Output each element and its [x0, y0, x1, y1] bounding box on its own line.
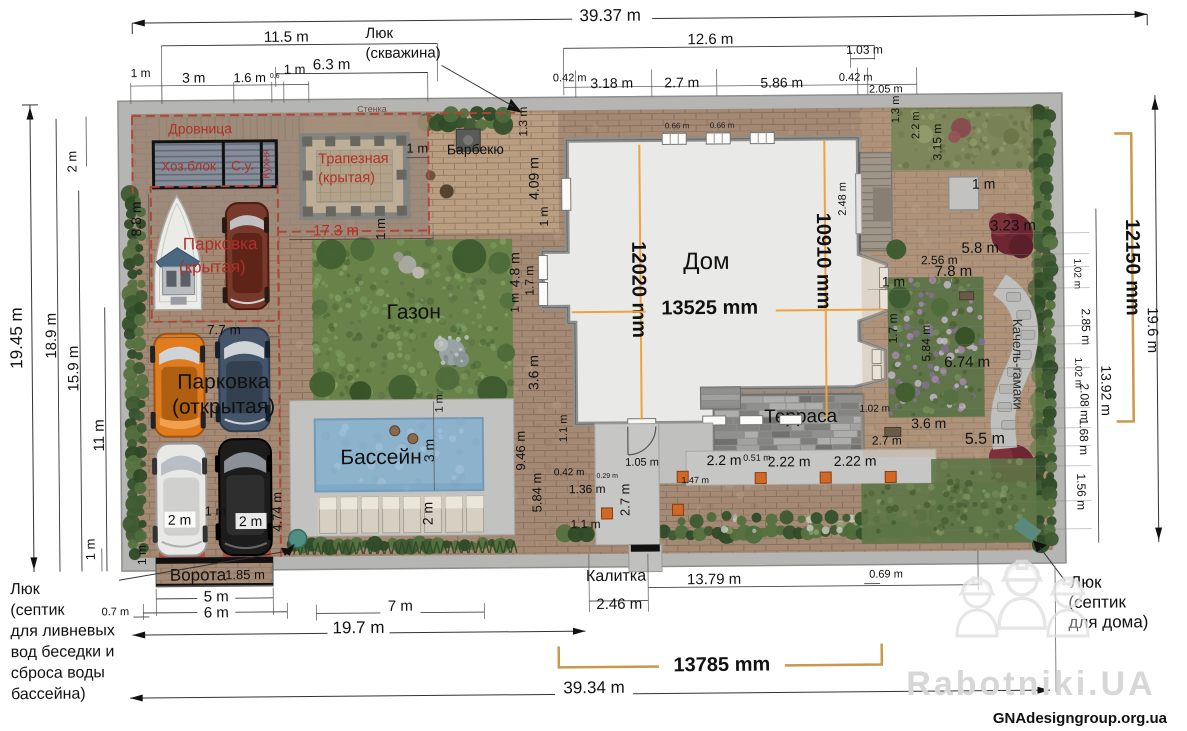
svg-text:39.34 m: 39.34 m [563, 678, 625, 698]
svg-text:Люк: Люк [365, 25, 393, 42]
svg-text:1 m: 1 m [882, 273, 905, 289]
svg-text:5.84 m: 5.84 m [529, 473, 544, 513]
svg-text:1.05 m: 1.05 m [625, 456, 659, 468]
svg-text:Трапезная: Трапезная [318, 151, 388, 168]
svg-text:0.29 m: 0.29 m [596, 473, 618, 480]
svg-text:2.2 m: 2.2 m [706, 452, 741, 468]
svg-text:2.2 m: 2.2 m [910, 111, 922, 139]
svg-text:0.69 m: 0.69 m [869, 568, 903, 580]
svg-text:2.22 m: 2.22 m [768, 453, 811, 469]
svg-text:4.09 m: 4.09 m [525, 157, 541, 200]
svg-text:1 m: 1 m [83, 539, 98, 561]
svg-text:3 m: 3 m [182, 69, 205, 85]
svg-text:бассейна): бассейна) [11, 686, 86, 704]
svg-text:5 m: 5 m [204, 588, 229, 605]
svg-text:0.66 m: 0.66 m [665, 121, 690, 130]
svg-text:1 m: 1 m [537, 206, 551, 226]
svg-text:2.85 m: 2.85 m [1079, 308, 1093, 345]
svg-text:Бассейн: Бассейн [340, 446, 422, 470]
svg-text:(крытая): (крытая) [318, 170, 375, 186]
svg-text:0.42 m: 0.42 m [553, 72, 587, 84]
svg-text:5.84 m: 5.84 m [919, 325, 933, 362]
svg-text:1.47 m: 1.47 m [681, 475, 709, 485]
svg-text:2 m: 2 m [168, 512, 191, 528]
svg-text:6.74 m: 6.74 m [944, 354, 990, 371]
svg-text:7.7 m: 7.7 m [207, 322, 241, 337]
svg-text:Калитка: Калитка [586, 568, 646, 586]
svg-text:для ливневых: для ливневых [10, 622, 114, 640]
svg-text:Парковка: Парковка [177, 370, 270, 394]
svg-text:Кухня: Кухня [260, 149, 272, 179]
svg-text:13.92 m: 13.92 m [1098, 365, 1114, 416]
svg-text:Стенка: Стенка [357, 104, 387, 114]
svg-text:1 m: 1 m [508, 293, 522, 313]
svg-text:1.03 m: 1.03 m [846, 43, 883, 57]
svg-text:39.37 m: 39.37 m [579, 6, 641, 26]
svg-text:13785 mm: 13785 mm [673, 654, 770, 677]
svg-text:Дровница: Дровница [168, 120, 232, 137]
svg-text:1.1 m: 1.1 m [558, 415, 570, 443]
svg-text:13525 mm: 13525 mm [661, 297, 758, 320]
svg-text:0.7 m: 0.7 m [102, 606, 130, 618]
svg-text:0.42 m: 0.42 m [554, 467, 585, 478]
svg-text:2 m: 2 m [419, 502, 435, 525]
svg-text:Люк: Люк [10, 581, 41, 598]
svg-text:1 m: 1 m [284, 62, 306, 77]
svg-text:Хоз.блок: Хоз.блок [161, 158, 216, 173]
svg-text:2.7 m: 2.7 m [617, 483, 632, 516]
svg-text:(септик: (септик [10, 602, 65, 619]
svg-text:15.9 m: 15.9 m [65, 346, 82, 392]
svg-text:2.08 m: 2.08 m [1077, 383, 1091, 420]
svg-text:12020 mm: 12020 mm [627, 241, 650, 338]
svg-text:1.1 m: 1.1 m [571, 517, 601, 531]
svg-text:0.42 m: 0.42 m [839, 72, 873, 84]
svg-text:1.85 m: 1.85 m [225, 567, 265, 582]
svg-text:7 m: 7 m [388, 598, 413, 615]
svg-text:1 m: 1 m [972, 176, 995, 192]
svg-text:3.6 m: 3.6 m [911, 415, 946, 431]
svg-text:вод беседки и: вод беседки и [11, 643, 115, 661]
svg-text:6.3 m: 6.3 m [313, 56, 351, 73]
svg-text:3.6 m: 3.6 m [525, 355, 541, 390]
svg-text:0.66 m: 0.66 m [710, 121, 735, 130]
svg-text:9.46 m: 9.46 m [513, 431, 528, 471]
svg-text:0.6: 0.6 [270, 73, 280, 80]
svg-text:2.22 m: 2.22 m [834, 453, 877, 469]
svg-text:1.02 m: 1.02 m [1071, 258, 1082, 289]
svg-text:13.79 m: 13.79 m [687, 571, 741, 588]
svg-text:18.9 m: 18.9 m [43, 313, 60, 359]
svg-text:(крытая): (крытая) [179, 257, 246, 277]
svg-text:12.6 m: 12.6 m [687, 31, 733, 48]
svg-text:Ворота: Ворота [170, 565, 227, 584]
svg-text:Дом: Дом [683, 248, 730, 275]
svg-text:1.7 m: 1.7 m [522, 266, 536, 296]
svg-text:3.23 m: 3.23 m [990, 217, 1036, 234]
svg-text:1.56 m: 1.56 m [1074, 473, 1088, 510]
svg-text:2.05 m: 2.05 m [869, 83, 903, 95]
svg-text:7.8 m: 7.8 m [935, 263, 973, 280]
svg-text:3.15 m: 3.15 m [930, 124, 944, 161]
svg-text:Rabotniki.UA: Rabotniki.UA [906, 665, 1155, 703]
svg-text:12150 mm: 12150 mm [1121, 219, 1144, 316]
svg-text:3.18 m: 3.18 m [590, 75, 633, 91]
svg-text:5.86 m: 5.86 m [760, 74, 803, 90]
svg-text:1.7 m: 1.7 m [886, 313, 900, 343]
svg-text:17.3 m: 17.3 m [313, 222, 359, 239]
svg-text:Газон: Газон [386, 300, 441, 323]
svg-text:Качель-гамаки: Качель-гамаки [1010, 319, 1026, 410]
svg-text:1 m: 1 m [135, 545, 149, 565]
svg-text:8.8 m: 8.8 m [128, 201, 144, 236]
svg-text:11 m: 11 m [91, 419, 108, 451]
svg-text:2.48 m: 2.48 m [837, 182, 849, 216]
svg-text:1 m: 1 m [131, 66, 151, 80]
svg-text:2 m: 2 m [239, 513, 262, 529]
svg-text:1.3 m: 1.3 m [890, 96, 902, 124]
svg-text:Барбекю: Барбекю [447, 141, 504, 157]
svg-text:2.46 m: 2.46 m [596, 596, 642, 613]
svg-text:1.3 m: 1.3 m [516, 107, 530, 137]
svg-text:19.45 m: 19.45 m [7, 307, 27, 369]
svg-text:(скважина): (скважина) [365, 44, 440, 62]
svg-text:1 m: 1 m [205, 503, 227, 518]
svg-text:Парковка: Парковка [183, 234, 258, 254]
svg-text:1 m: 1 m [373, 218, 388, 240]
svg-text:С.у.: С.у. [231, 158, 254, 173]
svg-text:(открытая): (открытая) [172, 395, 275, 419]
svg-text:2.7 m: 2.7 m [872, 433, 902, 447]
svg-text:1.6 m: 1.6 m [233, 70, 266, 85]
svg-text:2 m: 2 m [64, 151, 79, 173]
svg-text:1.02 m: 1.02 m [859, 403, 890, 414]
svg-text:5.5 m: 5.5 m [965, 430, 1005, 447]
svg-text:19.7 m: 19.7 m [332, 618, 384, 637]
svg-text:1 m: 1 m [406, 140, 428, 155]
svg-text:1.36 m: 1.36 m [569, 482, 606, 496]
svg-text:6 m: 6 m [204, 604, 229, 621]
svg-text:5.8 m: 5.8 m [961, 240, 999, 257]
svg-text:4.8 m: 4.8 m [506, 252, 522, 287]
svg-text:1 m: 1 m [433, 394, 445, 412]
svg-text:4.74 m: 4.74 m [269, 492, 284, 532]
svg-text:2.7 m: 2.7 m [664, 74, 699, 90]
svg-text:3 m: 3 m [421, 439, 437, 462]
svg-text:сброса воды: сброса воды [11, 664, 105, 682]
svg-text:19.6 m: 19.6 m [1144, 307, 1161, 353]
svg-text:1.68 m: 1.68 m [1077, 418, 1091, 455]
svg-text:11.5 m: 11.5 m [264, 29, 309, 46]
svg-text:10910 mm: 10910 mm [812, 213, 835, 310]
svg-text:GNAdesigngroup.org.ua: GNAdesigngroup.org.ua [993, 710, 1168, 727]
